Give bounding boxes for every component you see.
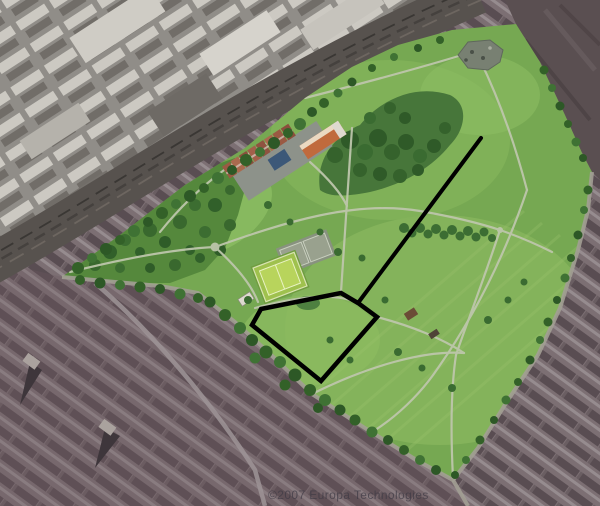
satellite-map: ©2007 Europa Technologies: [0, 0, 600, 506]
satellite-image: ©2007 Europa Technologies: [0, 0, 600, 506]
watermark-text: ©2007 Europa Technologies: [268, 488, 429, 502]
